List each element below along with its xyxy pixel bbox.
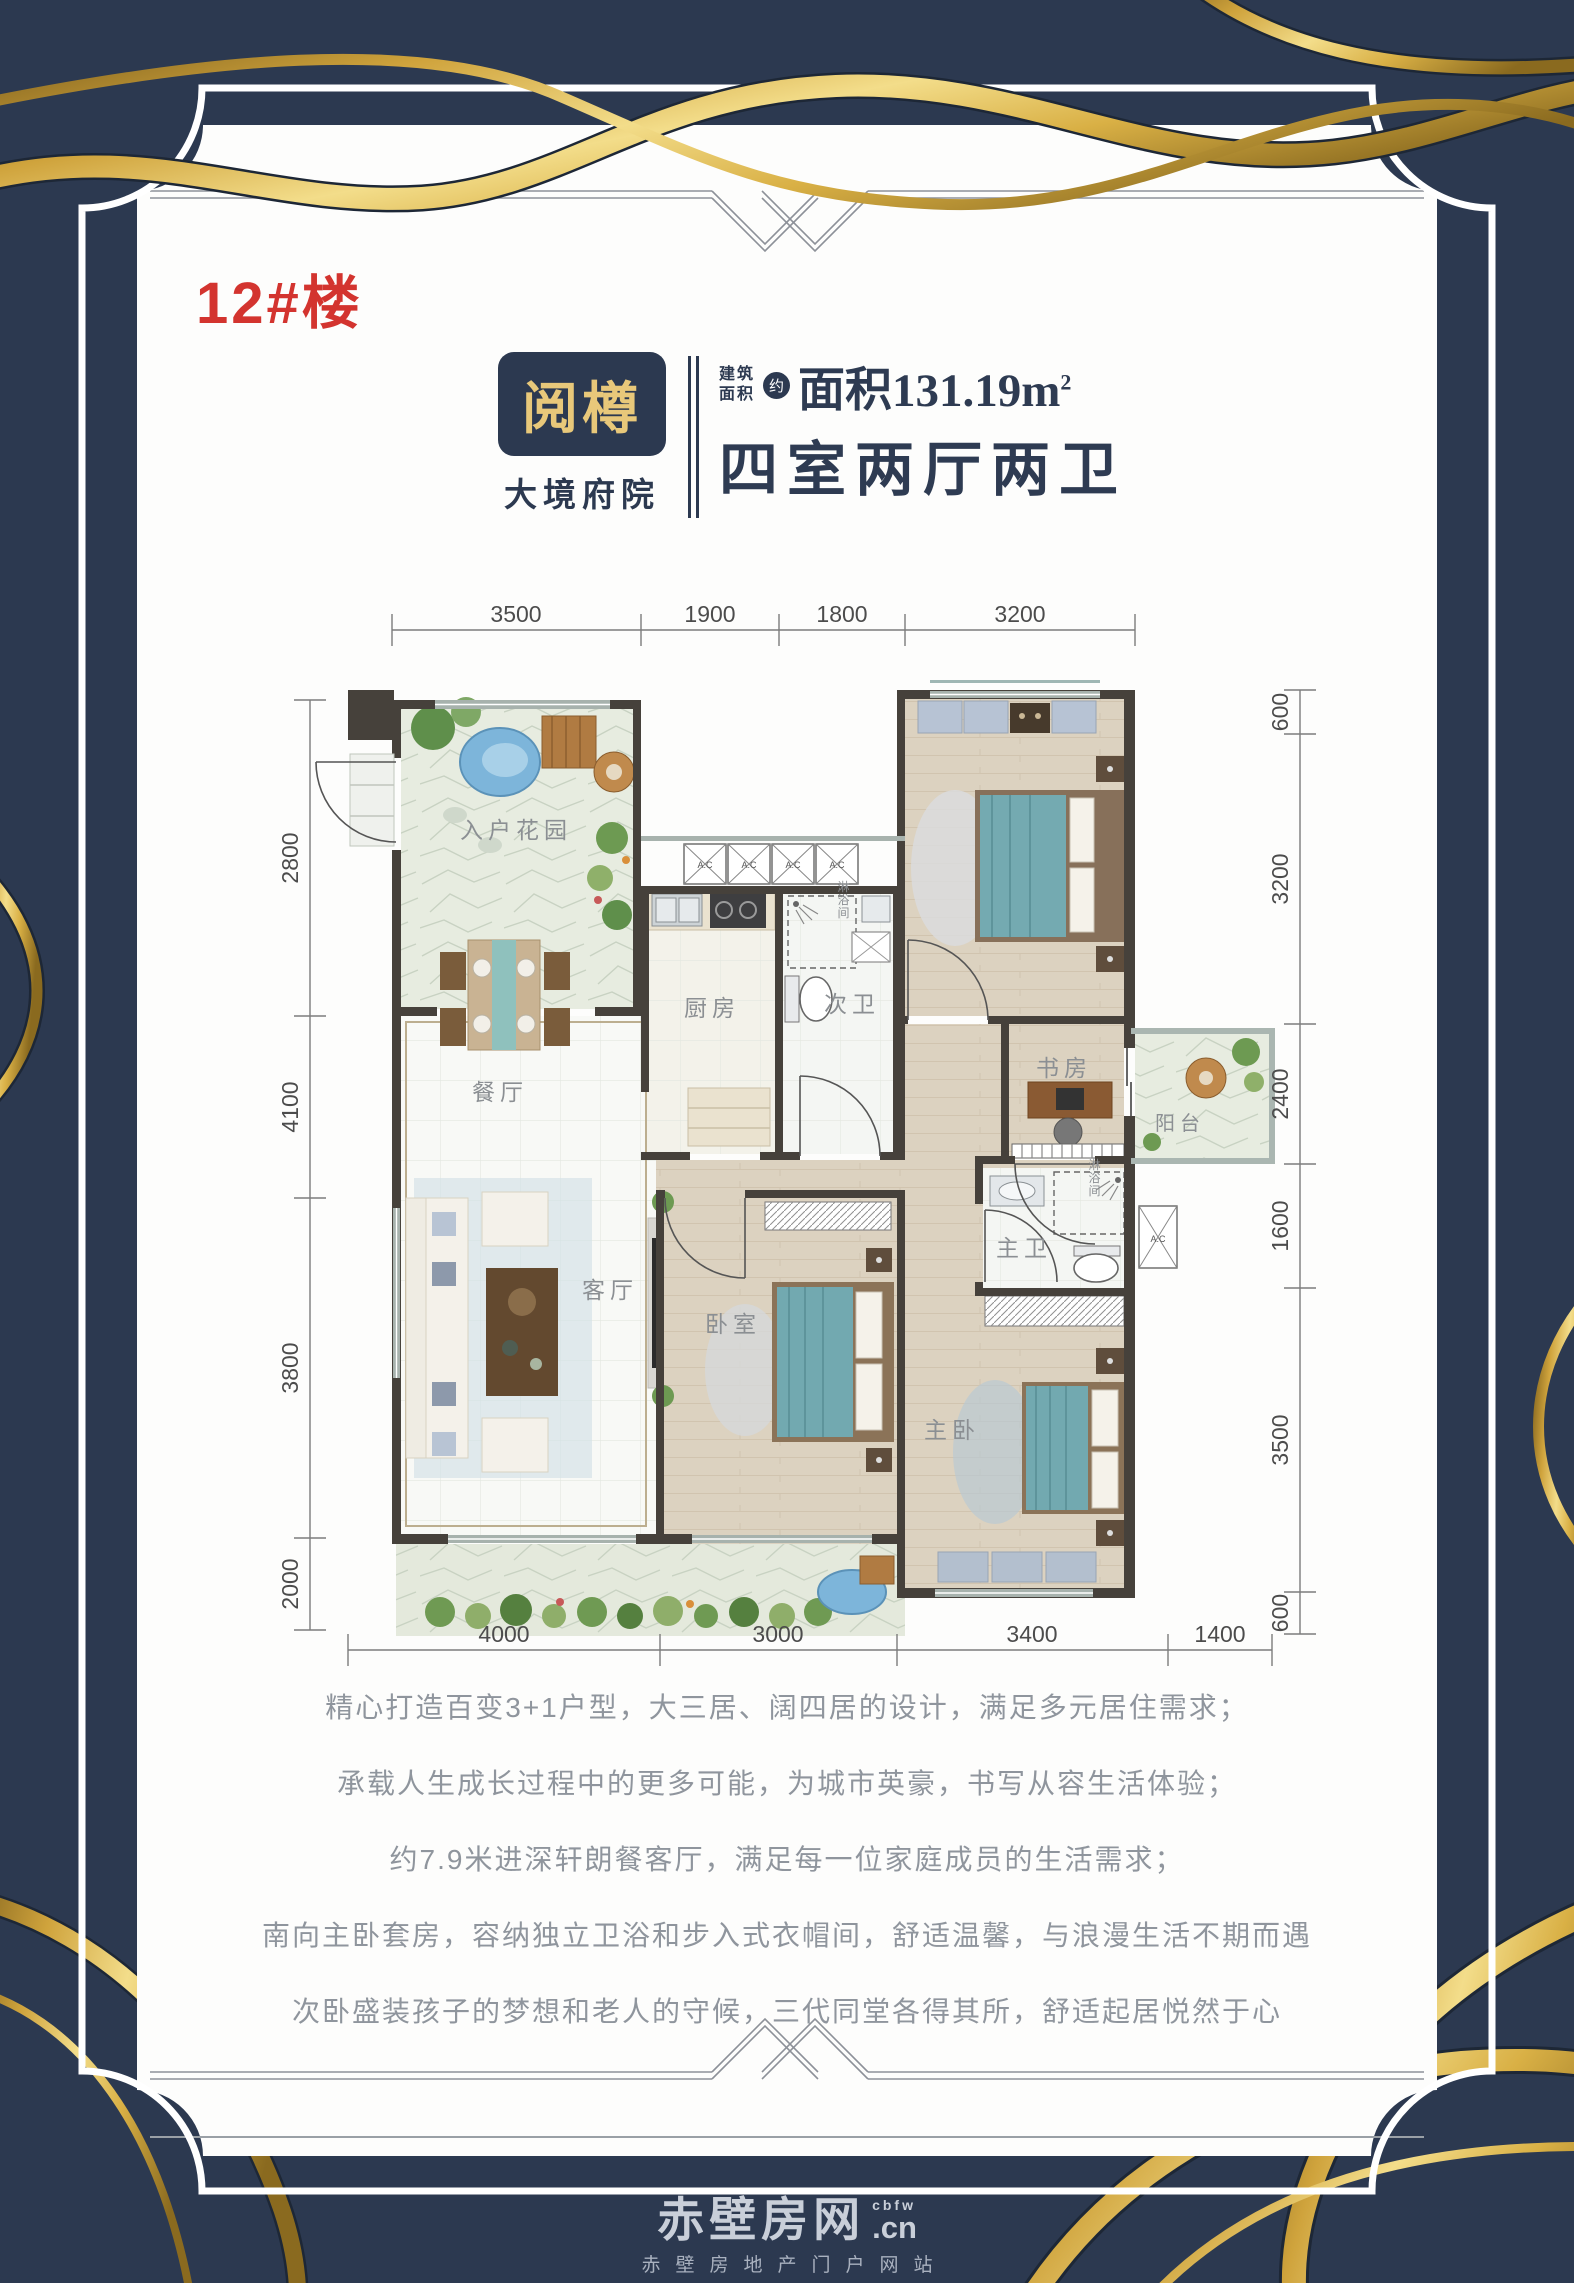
svg-text:2400: 2400 (1267, 1068, 1293, 1119)
room-label-balcony: 阳台 (1155, 1112, 1205, 1135)
svg-text:600: 600 (1267, 693, 1293, 731)
ac-unit-icon: A.C (684, 844, 726, 884)
site-logo: 赤壁房网 cbfw .cn (0, 2196, 1574, 2243)
room-label-study: 书房 (1036, 1055, 1092, 1081)
brand-subtitle: 大境府院 (498, 468, 666, 516)
svg-text:1400: 1400 (1194, 1621, 1245, 1647)
ac-unit-icon: A.C (1139, 1206, 1177, 1268)
svg-text:A.C: A.C (1150, 1234, 1166, 1244)
spec-block: 建筑 面积 约 面积131.19m2 四室两厅两卫 (719, 352, 1127, 507)
room-label-shower-a: 淋浴间 (836, 880, 850, 919)
brand-name: 阅樽 (522, 364, 642, 445)
svg-text:1800: 1800 (816, 601, 867, 627)
room-label-master-bedroom: 主卧 (924, 1417, 980, 1443)
ac-unit-icon: A.C (772, 844, 814, 884)
footer: 赤壁房网 cbfw .cn 赤壁房地产门户网站 (0, 2196, 1574, 2277)
svg-text:3400: 3400 (1006, 1621, 1057, 1647)
svg-text:3000: 3000 (752, 1621, 803, 1647)
building-number: 12#楼 (196, 256, 363, 340)
svg-text:600: 600 (1267, 1594, 1293, 1632)
description-line: 精心打造百变3+1户型，大三居、阔四居的设计，满足多元居住需求； (140, 1686, 1434, 1726)
svg-text:1600: 1600 (1267, 1200, 1293, 1251)
svg-text:1900: 1900 (684, 601, 735, 627)
description-line: 承载人生成长过程中的更多可能，为城市英豪，书写从容生活体验； (140, 1762, 1434, 1802)
svg-text:2000: 2000 (277, 1558, 303, 1609)
description-block: 精心打造百变3+1户型，大三居、阔四居的设计，满足多元居住需求； 承载人生成长过… (140, 1686, 1434, 2066)
floor-plan: A.C A.C A.C A.C A.C (250, 556, 1370, 1702)
brand-logo: 阅樽 (498, 352, 666, 456)
svg-text:A.C: A.C (697, 860, 713, 870)
svg-text:4000: 4000 (478, 1621, 529, 1647)
room-label-shower-b: 淋浴间 (1087, 1158, 1101, 1197)
site-slogan: 赤壁房地产门户网站 (0, 2250, 1574, 2277)
room-label-master-bath: 主卫 (996, 1235, 1052, 1261)
svg-text:4100: 4100 (277, 1081, 303, 1132)
room-label-kitchen: 厨房 (684, 995, 740, 1021)
svg-text:2800: 2800 (277, 832, 303, 883)
room-label-entry-garden: 入户花园 (460, 817, 572, 843)
room-label-living: 客厅 (582, 1277, 638, 1303)
area-label: 建筑 面积 (719, 365, 755, 405)
description-line: 次卧盛装孩子的梦想和老人的守候，三代同堂各得其所，舒适起居悦然于心 (140, 1990, 1434, 2030)
svg-text:3500: 3500 (1267, 1414, 1293, 1465)
header-divider (688, 356, 699, 518)
svg-text:3200: 3200 (994, 601, 1045, 627)
svg-text:3500: 3500 (490, 601, 541, 627)
svg-text:3200: 3200 (1267, 853, 1293, 904)
room-label-second-bath: 次卫 (824, 991, 880, 1017)
layout-title: 四室两厅两卫 (719, 422, 1127, 507)
description-line: 约7.9米进深轩朗餐客厅，满足每一位家庭成员的生活需求； (140, 1838, 1434, 1878)
description-line: 南向主卧套房，容纳独立卫浴和步入式衣帽间，舒适温馨，与浪漫生活不期而遇 (140, 1914, 1434, 1954)
site-logo-cn: .cn (872, 2212, 917, 2243)
approx-badge: 约 (763, 372, 790, 399)
svg-text:3800: 3800 (277, 1342, 303, 1393)
room-label-dining: 餐厅 (472, 1079, 528, 1105)
svg-text:A.C: A.C (785, 860, 801, 870)
svg-text:A.C: A.C (741, 860, 757, 870)
ac-unit-icon: A.C (728, 844, 770, 884)
svg-text:A.C: A.C (829, 860, 845, 870)
area-value: 面积131.19m2 (798, 351, 1071, 420)
site-logo-text: 赤壁房网 (657, 2196, 865, 2243)
room-label-bedroom: 卧室 (705, 1311, 761, 1337)
poster: A.C A.C A.C A.C A.C (0, 0, 1574, 2283)
area-row: 建筑 面积 约 面积131.19m2 (719, 352, 1127, 418)
ac-unit-icon: A.C (816, 844, 858, 884)
plan-header: 阅樽 大境府院 建筑 面积 约 面积131.19m2 四室两厅两卫 (498, 352, 1127, 518)
brand-block: 阅樽 大境府院 (498, 352, 666, 516)
